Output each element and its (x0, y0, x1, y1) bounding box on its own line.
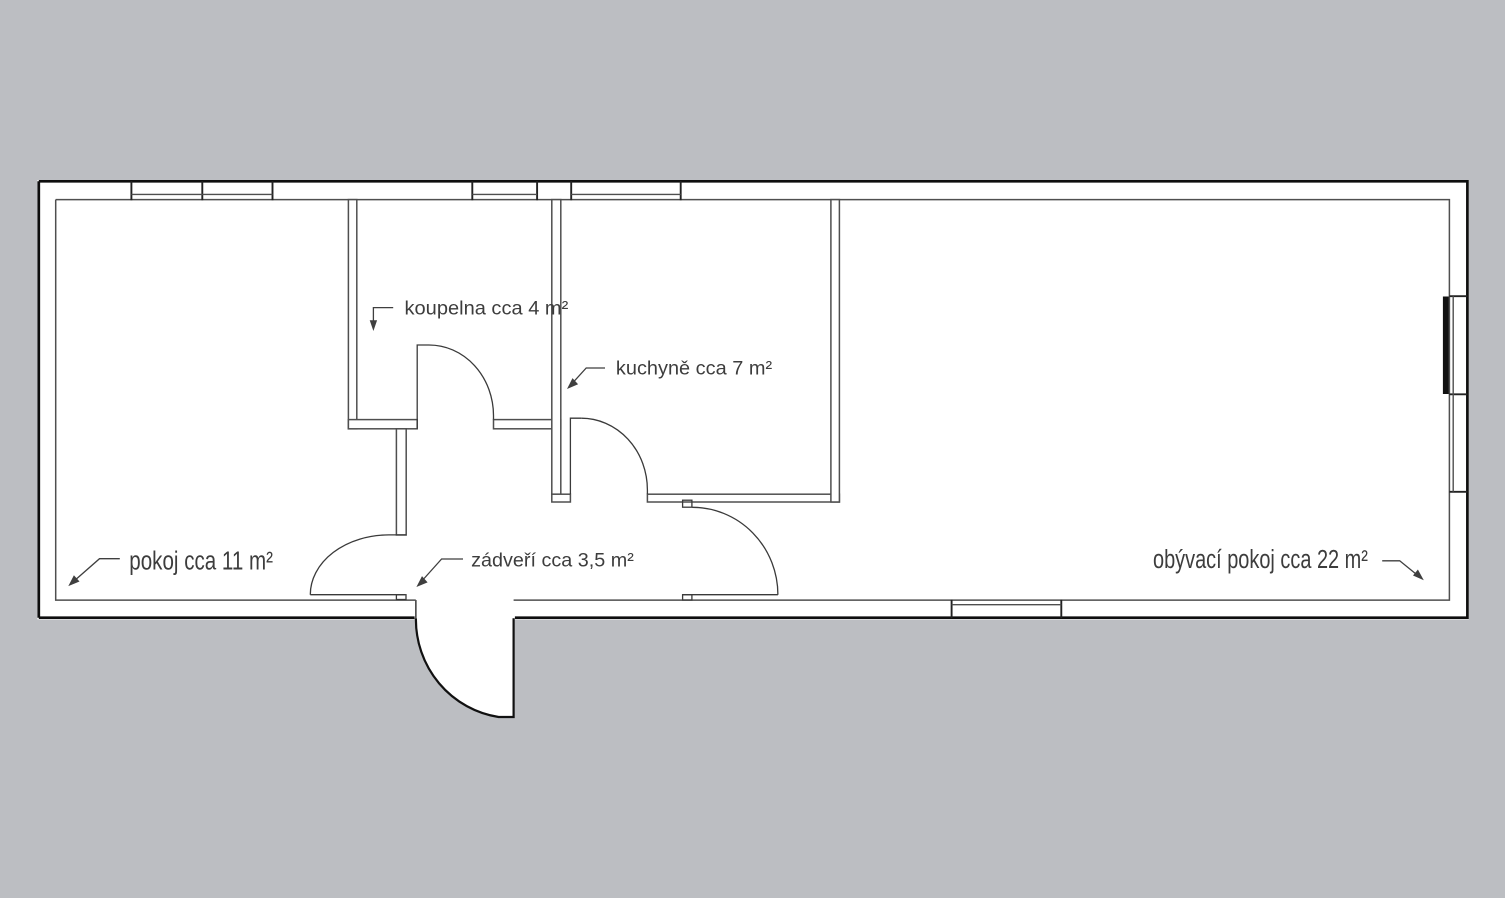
svg-text:zádveří cca 3,5 m²: zádveří cca 3,5 m² (471, 549, 634, 571)
svg-text:kuchyně cca 7 m²: kuchyně cca 7 m² (616, 358, 773, 380)
svg-text:koupelna cca 4 m²: koupelna cca 4 m² (405, 297, 569, 319)
svg-text:pokoj cca 11 m²: pokoj cca 11 m² (129, 548, 273, 576)
svg-text:obývací pokoj cca 22 m²: obývací pokoj cca 22 m² (1153, 546, 1368, 574)
